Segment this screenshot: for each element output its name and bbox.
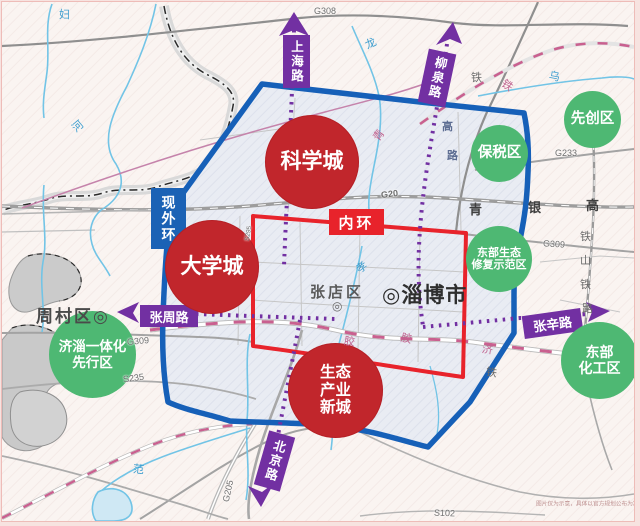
- zhangxin-road-label: 张辛路: [532, 311, 573, 335]
- zone-label-line: 济淄一体化: [59, 339, 127, 354]
- zone-label-line: 化工区: [579, 361, 621, 377]
- rail-char-jiao1: 胶: [343, 332, 356, 349]
- liuquan-road-label: 柳泉路: [423, 55, 451, 101]
- zibo-planning-map-frame: 上海路 柳泉路 现外环 内环 张周路 张辛路 北京路 科学城 大学城 生态 产业…: [0, 0, 640, 526]
- expressway-char-gao: 高: [442, 118, 453, 134]
- science-city-zone: 科学城: [265, 115, 359, 209]
- tieshan-rail-char-1: 铁: [580, 228, 591, 244]
- zhangzhou-road-label: 张周路: [149, 307, 188, 326]
- qingyin-char-yin: 银: [528, 197, 541, 216]
- qingyin-char-qing: 青: [469, 199, 482, 218]
- zhoucun-district-label: 周村区◎: [36, 302, 110, 327]
- inner-ring-badge: 内环: [329, 209, 384, 235]
- rail-char-tie-gray: 铁: [471, 69, 482, 85]
- zone-label-line: 产业: [320, 382, 351, 399]
- g309-east-shield: G309: [543, 238, 566, 250]
- zone-label-line: 生态: [320, 364, 351, 381]
- zone-label: 保税区: [478, 145, 522, 161]
- g233-shield: G233: [555, 148, 577, 158]
- inner-ring-label: 内环: [338, 212, 374, 233]
- rail-char-tie-mid: 铁: [485, 363, 498, 380]
- river-char-fan: 范: [132, 460, 145, 477]
- eco-industry-new-city-zone: 生态 产业 新城: [288, 343, 383, 438]
- zone-label-line: 先行区: [72, 355, 113, 370]
- g308-shield: G308: [314, 6, 336, 16]
- bonded-zone: 保税区: [471, 125, 528, 182]
- zone-label-line: 新城: [320, 399, 351, 416]
- expressway-char-lu: 路: [447, 147, 458, 163]
- map-disclaimer: 图片仅为示意，具体以官方规划公布为准。: [536, 499, 634, 508]
- zone-label: 大学城: [181, 255, 244, 279]
- shanghai-road-label: 上海路: [287, 40, 306, 84]
- tieshan-rail-char-2: 山: [580, 252, 591, 268]
- zhangdian-marker: ◎: [332, 299, 342, 313]
- xianchuang-zone: 先创区: [564, 91, 621, 148]
- map-canvas: [2, 2, 634, 521]
- tieshan-rail-char-4: 路: [582, 300, 593, 316]
- zone-label: 先创区: [571, 111, 615, 127]
- zone-label-line: 修复示范区: [472, 259, 527, 271]
- s102-shield: S102: [434, 508, 455, 519]
- tieshan-rail-char-3: 铁: [580, 276, 591, 292]
- river-char-fu: 妇: [59, 6, 70, 22]
- zone-label-line: 东部生态: [477, 247, 521, 259]
- zone-label: 科学城: [281, 150, 344, 174]
- qingyin-char-gao: 高: [586, 195, 599, 214]
- shanghai-road-badge: 上海路: [283, 35, 310, 88]
- east-eco-restoration-zone: 东部生态 修复示范区: [466, 226, 532, 292]
- zibo-planning-map: 上海路 柳泉路 现外环 内环 张周路 张辛路 北京路 科学城 大学城 生态 产业…: [2, 2, 634, 521]
- g20-shield: G20: [380, 188, 398, 200]
- rail-char-ji: 济: [481, 340, 494, 357]
- g309-west-shield: G309: [127, 335, 150, 347]
- zibo-city-label: ◎淄博市: [382, 279, 467, 309]
- zone-label-line: 东部: [586, 345, 614, 361]
- east-chemical-zone: 东部 化工区: [561, 322, 634, 399]
